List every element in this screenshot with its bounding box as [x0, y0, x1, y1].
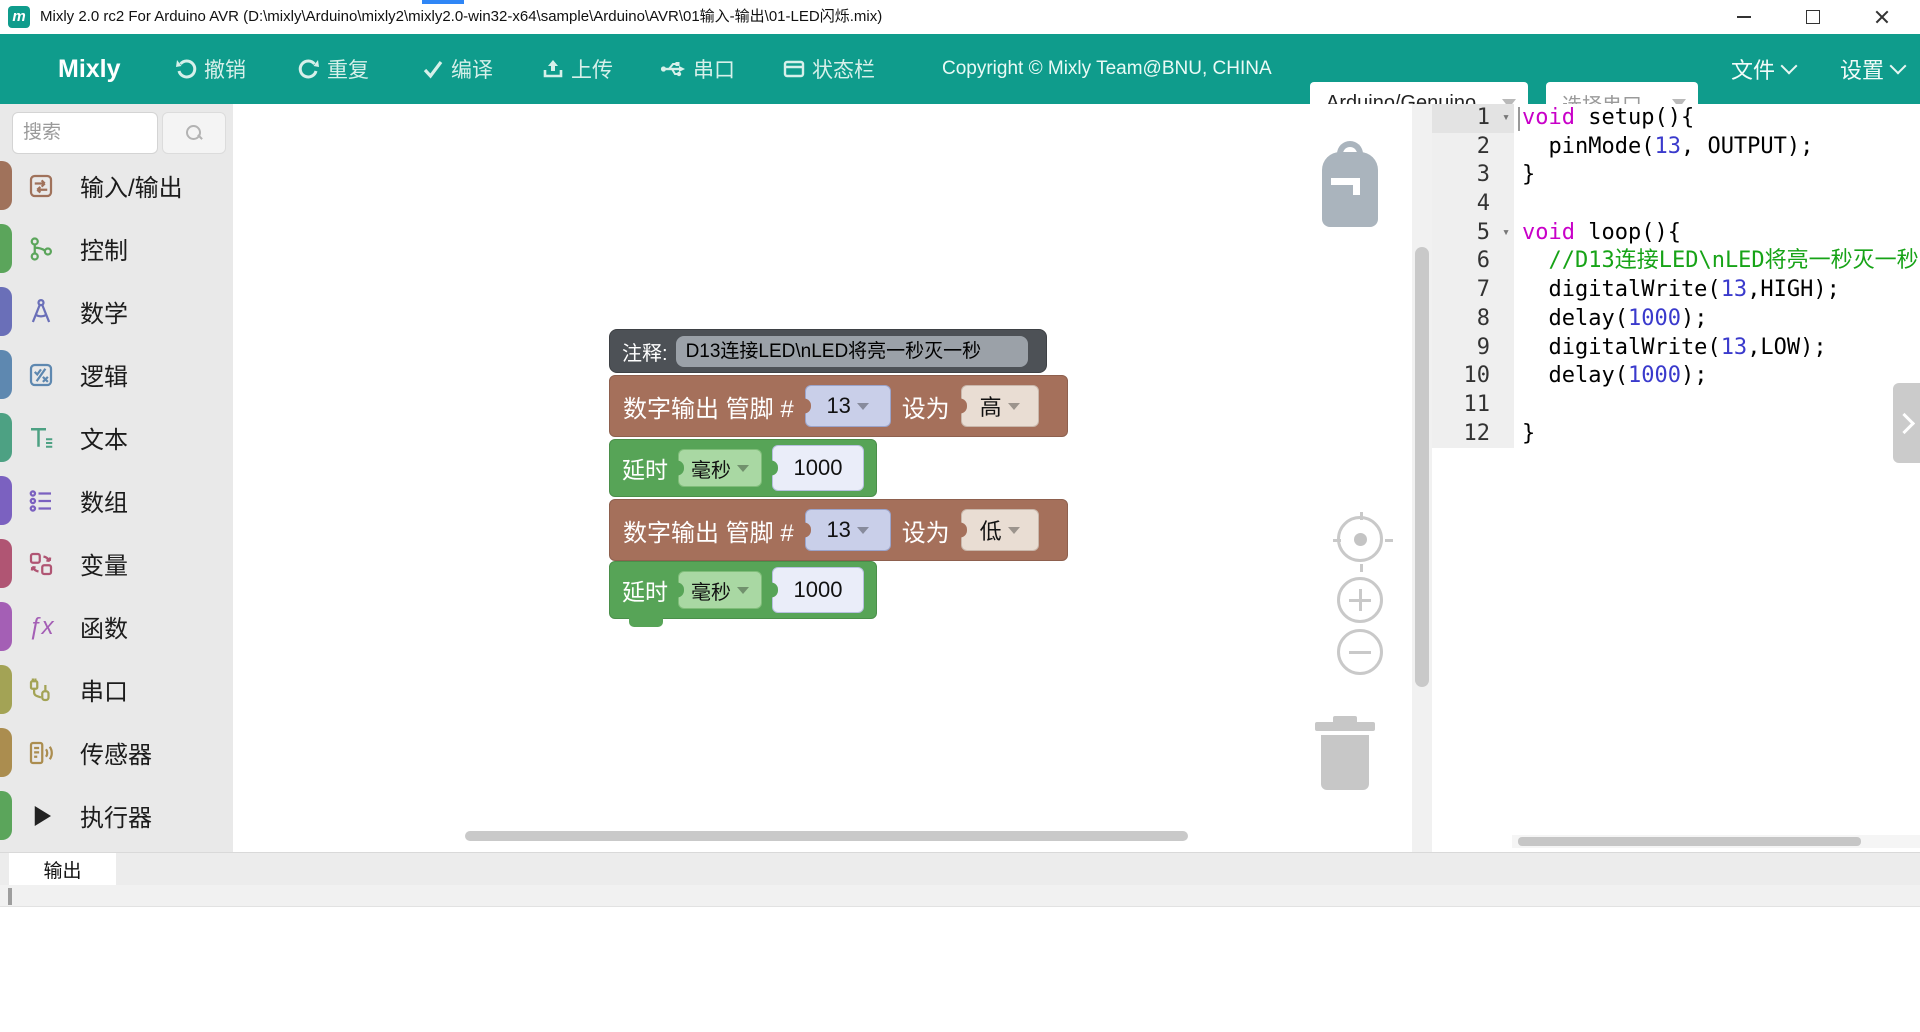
code-editor[interactable]: void setup(){ pinMode(13, OUTPUT);}void …	[1522, 104, 1919, 448]
category-color-strip	[0, 602, 12, 651]
block-digital-write-high[interactable]: 数字输出 管脚 # 13 设为 高	[609, 375, 1068, 437]
line-number: 1▾	[1432, 104, 1514, 133]
block-digital-write-low[interactable]: 数字输出 管脚 # 13 设为 低	[609, 499, 1068, 561]
settings-menu-label: 设置	[1840, 53, 1884, 85]
mixly-window: m Mixly 2.0 rc2 For Arduino AVR (D:\mixl…	[0, 0, 1920, 1032]
undo-label: 撤销	[204, 54, 246, 84]
line-number: 3	[1432, 161, 1514, 190]
delay-label: 延时	[622, 573, 668, 607]
category-list: 输入/输出 控制 数学 逻辑	[0, 154, 233, 847]
pin-value: 13	[826, 517, 850, 543]
chevron-right-icon	[1894, 412, 1915, 433]
file-menu-label: 文件	[1731, 53, 1775, 85]
mixly-logo-icon: m	[8, 6, 30, 28]
line-number: 9	[1432, 334, 1514, 363]
pin-dropdown[interactable]: 13	[805, 509, 891, 551]
category-label: 文本	[80, 420, 128, 455]
control-icon	[26, 234, 56, 264]
search-input[interactable]	[12, 112, 158, 154]
code-line: void setup(){	[1522, 104, 1919, 133]
file-menu[interactable]: 文件	[1731, 34, 1795, 104]
sidebar-item-serial[interactable]: 串口	[0, 658, 233, 721]
code-line	[1522, 391, 1919, 420]
line-number: 12	[1432, 420, 1514, 449]
unit-dropdown[interactable]: 毫秒	[678, 449, 762, 487]
delay-value: 1000	[794, 577, 843, 603]
line-number: 6	[1432, 247, 1514, 276]
fold-caret-icon[interactable]: ▾	[1502, 219, 1510, 248]
minus-icon	[1349, 651, 1371, 654]
zoom-in-button[interactable]	[1337, 577, 1383, 623]
code-line: digitalWrite(13,HIGH);	[1522, 276, 1919, 305]
sensor-icon	[26, 738, 56, 768]
console-resize-handle[interactable]	[8, 888, 12, 905]
serial-monitor-button[interactable]: 串口	[660, 34, 735, 104]
center-target-icon	[1354, 533, 1367, 546]
logic-icon	[26, 360, 56, 390]
block-comment[interactable]: 注释: D13连接LED\nLED将亮一秒灭一秒	[609, 329, 1047, 373]
line-number-gutter: 1▾2345▾6789101112	[1432, 104, 1514, 448]
main-toolbar: Mixly 撤销 重复 编译 上传	[0, 34, 1920, 104]
line-number: 8	[1432, 305, 1514, 334]
canvas-vertical-scrollbar-thumb[interactable]	[1415, 247, 1429, 687]
brand-title: Mixly	[58, 34, 121, 104]
category-label: 数组	[80, 483, 128, 518]
settings-menu[interactable]: 设置	[1840, 34, 1904, 104]
digital-write-label: 数字输出 管脚 #	[623, 513, 794, 548]
undo-icon	[175, 58, 197, 80]
sidebar-item-input-output[interactable]: 输入/输出	[0, 154, 233, 217]
category-color-strip	[0, 287, 12, 336]
array-icon	[26, 486, 56, 516]
tab-output[interactable]: 输出	[9, 853, 116, 885]
sidebar-item-sensor[interactable]: 传感器	[0, 721, 233, 784]
dropdown-caret-icon	[857, 527, 869, 534]
code-line: digitalWrite(13,LOW);	[1522, 334, 1919, 363]
digital-write-label: 数字输出 管脚 #	[623, 389, 794, 424]
text-cursor	[1518, 107, 1520, 131]
upload-button[interactable]: 上传	[542, 34, 613, 104]
category-color-strip	[0, 728, 12, 777]
upload-label: 上传	[571, 54, 613, 84]
title-bar-accent	[422, 0, 464, 4]
code-panel: 1▾2345▾6789101112 void setup(){ pinMode(…	[1432, 104, 1920, 852]
code-panel-collapse-button[interactable]	[1893, 383, 1920, 463]
sidebar-item-variable[interactable]: 变量	[0, 532, 233, 595]
dropdown-caret-icon	[737, 587, 749, 594]
code-line: delay(1000);	[1522, 362, 1919, 391]
maximize-icon	[1806, 10, 1820, 24]
delay-value-input[interactable]: 1000	[772, 567, 864, 613]
copyright-text: Copyright © Mixly Team@BNU, CHINA	[942, 34, 1272, 104]
pin-value: 13	[826, 393, 850, 419]
chevron-down-icon	[1781, 58, 1798, 75]
compile-icon	[422, 58, 444, 80]
statusbar-icon	[783, 58, 805, 80]
unit-value: 毫秒	[691, 454, 731, 483]
window-title: Mixly 2.0 rc2 For Arduino AVR (D:\mixly\…	[40, 0, 882, 34]
category-color-strip	[0, 413, 12, 462]
category-color-strip	[0, 476, 12, 525]
level-dropdown[interactable]: 低	[961, 509, 1039, 551]
unit-value: 毫秒	[691, 576, 731, 605]
category-label: 逻辑	[80, 357, 128, 392]
sidebar-item-array[interactable]: 数组	[0, 469, 233, 532]
compile-label: 编译	[451, 54, 493, 84]
set-as-label: 设为	[902, 389, 950, 424]
code-line: delay(1000);	[1522, 305, 1919, 334]
category-label: 串口	[80, 672, 128, 707]
line-number: 5▾	[1432, 219, 1514, 248]
redo-button[interactable]: 重复	[298, 34, 369, 104]
delay-label: 延时	[622, 451, 668, 485]
code-line: void loop(){	[1522, 219, 1919, 248]
block-category-sidebar: 输入/输出 控制 数学 逻辑	[0, 104, 233, 852]
level-dropdown[interactable]: 高	[961, 385, 1039, 427]
category-label: 传感器	[80, 735, 152, 770]
code-horizontal-scrollbar-thumb[interactable]	[1518, 837, 1861, 846]
dropdown-caret-icon	[857, 403, 869, 410]
category-color-strip	[0, 161, 12, 210]
sidebar-item-text[interactable]: 文本	[0, 406, 233, 469]
maximize-button[interactable]	[1790, 0, 1836, 34]
upload-icon	[542, 58, 564, 80]
chevron-down-icon	[1890, 58, 1907, 75]
search-icon	[185, 124, 203, 142]
trash-icon[interactable]	[1315, 716, 1375, 790]
canvas-horizontal-scrollbar-thumb[interactable]	[465, 831, 1188, 841]
serial-label: 串口	[693, 54, 735, 84]
close-button[interactable]	[1859, 0, 1905, 34]
category-color-strip	[0, 350, 12, 399]
line-number: 4	[1432, 190, 1514, 219]
line-number: 11	[1432, 391, 1514, 420]
minimize-button[interactable]	[1721, 0, 1767, 34]
serialport-icon	[26, 675, 56, 705]
search-button[interactable]	[162, 112, 226, 154]
block-delay-1[interactable]: 延时 毫秒 1000	[609, 439, 877, 497]
close-icon	[1874, 9, 1890, 25]
serial-icon	[660, 58, 686, 80]
code-line: }	[1522, 161, 1919, 190]
fold-caret-icon[interactable]: ▾	[1502, 104, 1510, 133]
sidebar-item-math[interactable]: 数学	[0, 280, 233, 343]
category-color-strip	[0, 791, 12, 840]
category-label: 数学	[80, 294, 128, 329]
level-value: 低	[980, 514, 1002, 546]
set-as-label: 设为	[902, 513, 950, 548]
level-value: 高	[980, 390, 1002, 422]
math-icon	[26, 297, 56, 327]
output-console	[0, 885, 1920, 907]
function-icon: ƒx	[26, 612, 56, 642]
bottom-tab-strip	[0, 852, 1920, 885]
comment-block-label: 注释:	[622, 337, 668, 366]
sidebar-item-function[interactable]: ƒx 函数	[0, 595, 233, 658]
compile-button[interactable]: 编译	[422, 34, 493, 104]
delay-value: 1000	[794, 455, 843, 481]
minimize-icon	[1737, 16, 1751, 18]
block-delay-2[interactable]: 延时 毫秒 1000	[609, 561, 877, 619]
dropdown-caret-icon	[1008, 403, 1020, 410]
pin-dropdown[interactable]: 13	[805, 385, 891, 427]
text-icon	[26, 423, 56, 453]
category-color-strip	[0, 539, 12, 588]
line-number: 2	[1432, 133, 1514, 162]
zoom-reset-button[interactable]	[1337, 516, 1383, 562]
redo-label: 重复	[327, 54, 369, 84]
statusbar-label: 状态栏	[812, 54, 875, 84]
category-label: 控制	[80, 231, 128, 266]
title-bar: m Mixly 2.0 rc2 For Arduino AVR (D:\mixl…	[0, 0, 1920, 34]
dropdown-caret-icon	[737, 465, 749, 472]
actuator-icon	[26, 801, 56, 831]
dropdown-caret-icon	[1008, 527, 1020, 534]
variable-icon	[26, 549, 56, 579]
code-line: }	[1522, 420, 1919, 449]
category-label: 输入/输出	[80, 168, 183, 203]
sidebar-item-actuator[interactable]: 执行器	[0, 784, 233, 847]
delay-value-input[interactable]: 1000	[772, 445, 864, 491]
block-connector-nub	[629, 618, 663, 627]
line-number: 10	[1432, 362, 1514, 391]
io-icon	[26, 171, 56, 201]
code-line: pinMode(13, OUTPUT);	[1522, 133, 1919, 162]
sidebar-item-logic[interactable]: 逻辑	[0, 343, 233, 406]
category-color-strip	[0, 224, 12, 273]
code-line	[1522, 190, 1919, 219]
backpack-icon[interactable]	[1322, 141, 1378, 227]
code-line: //D13连接LED\nLED将亮一秒灭一秒	[1522, 247, 1919, 276]
redo-icon	[298, 58, 320, 80]
sidebar-item-control[interactable]: 控制	[0, 217, 233, 280]
undo-button[interactable]: 撤销	[175, 34, 246, 104]
comment-text-field[interactable]: D13连接LED\nLED将亮一秒灭一秒	[676, 336, 1028, 367]
statusbar-button[interactable]: 状态栏	[783, 34, 875, 104]
zoom-out-button[interactable]	[1337, 629, 1383, 675]
unit-dropdown[interactable]: 毫秒	[678, 571, 762, 609]
category-label: 函数	[80, 609, 128, 644]
category-color-strip	[0, 665, 12, 714]
line-number: 7	[1432, 276, 1514, 305]
category-label: 变量	[80, 546, 128, 581]
category-label: 执行器	[80, 798, 152, 833]
